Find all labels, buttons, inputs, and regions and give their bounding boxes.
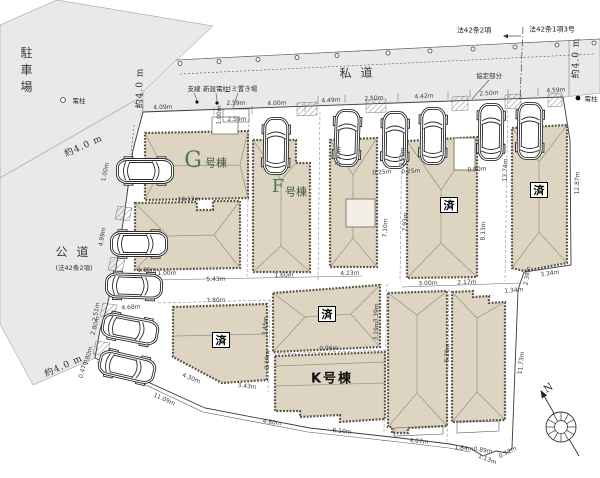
pole-dot-icon [576, 96, 581, 101]
car [111, 230, 168, 258]
site-plan-drawing [0, 0, 600, 478]
building-sold-4 [273, 285, 380, 352]
building-bottom-right-1 [388, 291, 447, 436]
building-bottom-right-2 [452, 291, 505, 433]
car [515, 102, 544, 159]
car [105, 271, 163, 301]
car [418, 107, 447, 164]
car [117, 157, 174, 185]
car [332, 109, 362, 167]
car [476, 103, 505, 160]
entrance-porch [212, 117, 238, 134]
car [261, 117, 290, 174]
pole-circle-icon [61, 98, 66, 103]
car [380, 111, 409, 168]
